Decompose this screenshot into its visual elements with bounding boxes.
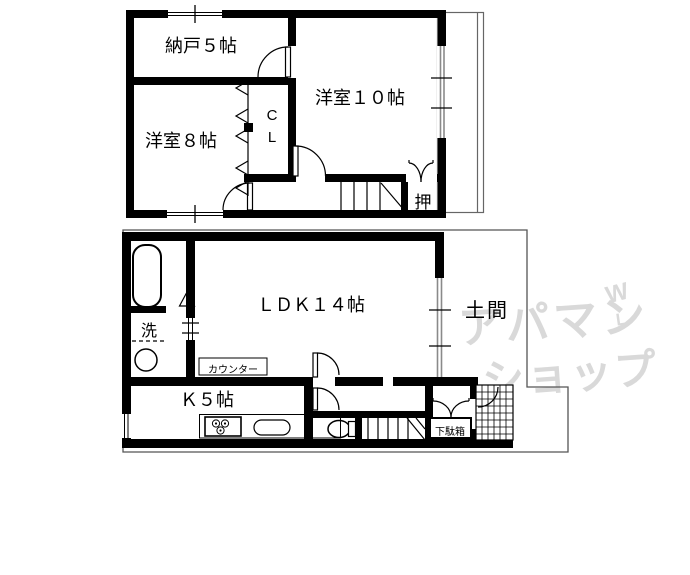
toilet-icon xyxy=(328,421,356,438)
room-label-western-8: 洋室８帖 xyxy=(139,127,223,153)
lower-walls xyxy=(122,232,513,448)
room-label-laundry: 洗 xyxy=(136,317,162,341)
kitchen-counter xyxy=(200,415,341,439)
window-upper-north xyxy=(168,5,222,23)
sink-icon xyxy=(254,420,290,435)
room-label-storage: 納戸５帖 xyxy=(160,32,242,58)
window-laundry-wall xyxy=(182,318,199,340)
stairs-lower xyxy=(368,418,425,440)
door-storage-room xyxy=(258,46,296,78)
window-ldk-east xyxy=(429,278,451,377)
window-upper-east xyxy=(431,46,452,138)
closet-label-c: C xyxy=(267,107,278,124)
oshiire-double-door xyxy=(406,160,437,182)
room-label-ldk: ＬＤＫ１４帖 xyxy=(250,291,372,317)
room-label-shoe-cabinet: 下駄箱 xyxy=(429,423,471,438)
room-label-closet: CL xyxy=(261,105,283,149)
room-label-counter: カウンター xyxy=(199,361,267,376)
entrance-tile xyxy=(476,385,513,440)
washing-machine-icon xyxy=(135,349,157,371)
room-label-oshiire: 押 xyxy=(408,188,438,213)
window-upper-south xyxy=(167,205,223,223)
floor-plan-page: アパマン W L ショップ xyxy=(0,0,690,575)
bathtub-icon xyxy=(133,245,161,307)
lower-floor-plan xyxy=(121,230,568,452)
stairs-upper xyxy=(341,182,404,210)
window-kitchen-west xyxy=(121,414,132,438)
door-western-room-10 xyxy=(293,146,326,176)
door-ldk xyxy=(313,353,339,377)
door-hall xyxy=(313,388,339,410)
room-label-kitchen: Ｋ５帖 xyxy=(172,386,242,412)
shoe-cabinet-doors xyxy=(433,398,469,417)
room-label-doma: 土間 xyxy=(464,294,510,323)
room-label-western-10: 洋室１０帖 xyxy=(306,84,414,110)
closet-label-l: L xyxy=(268,129,276,146)
